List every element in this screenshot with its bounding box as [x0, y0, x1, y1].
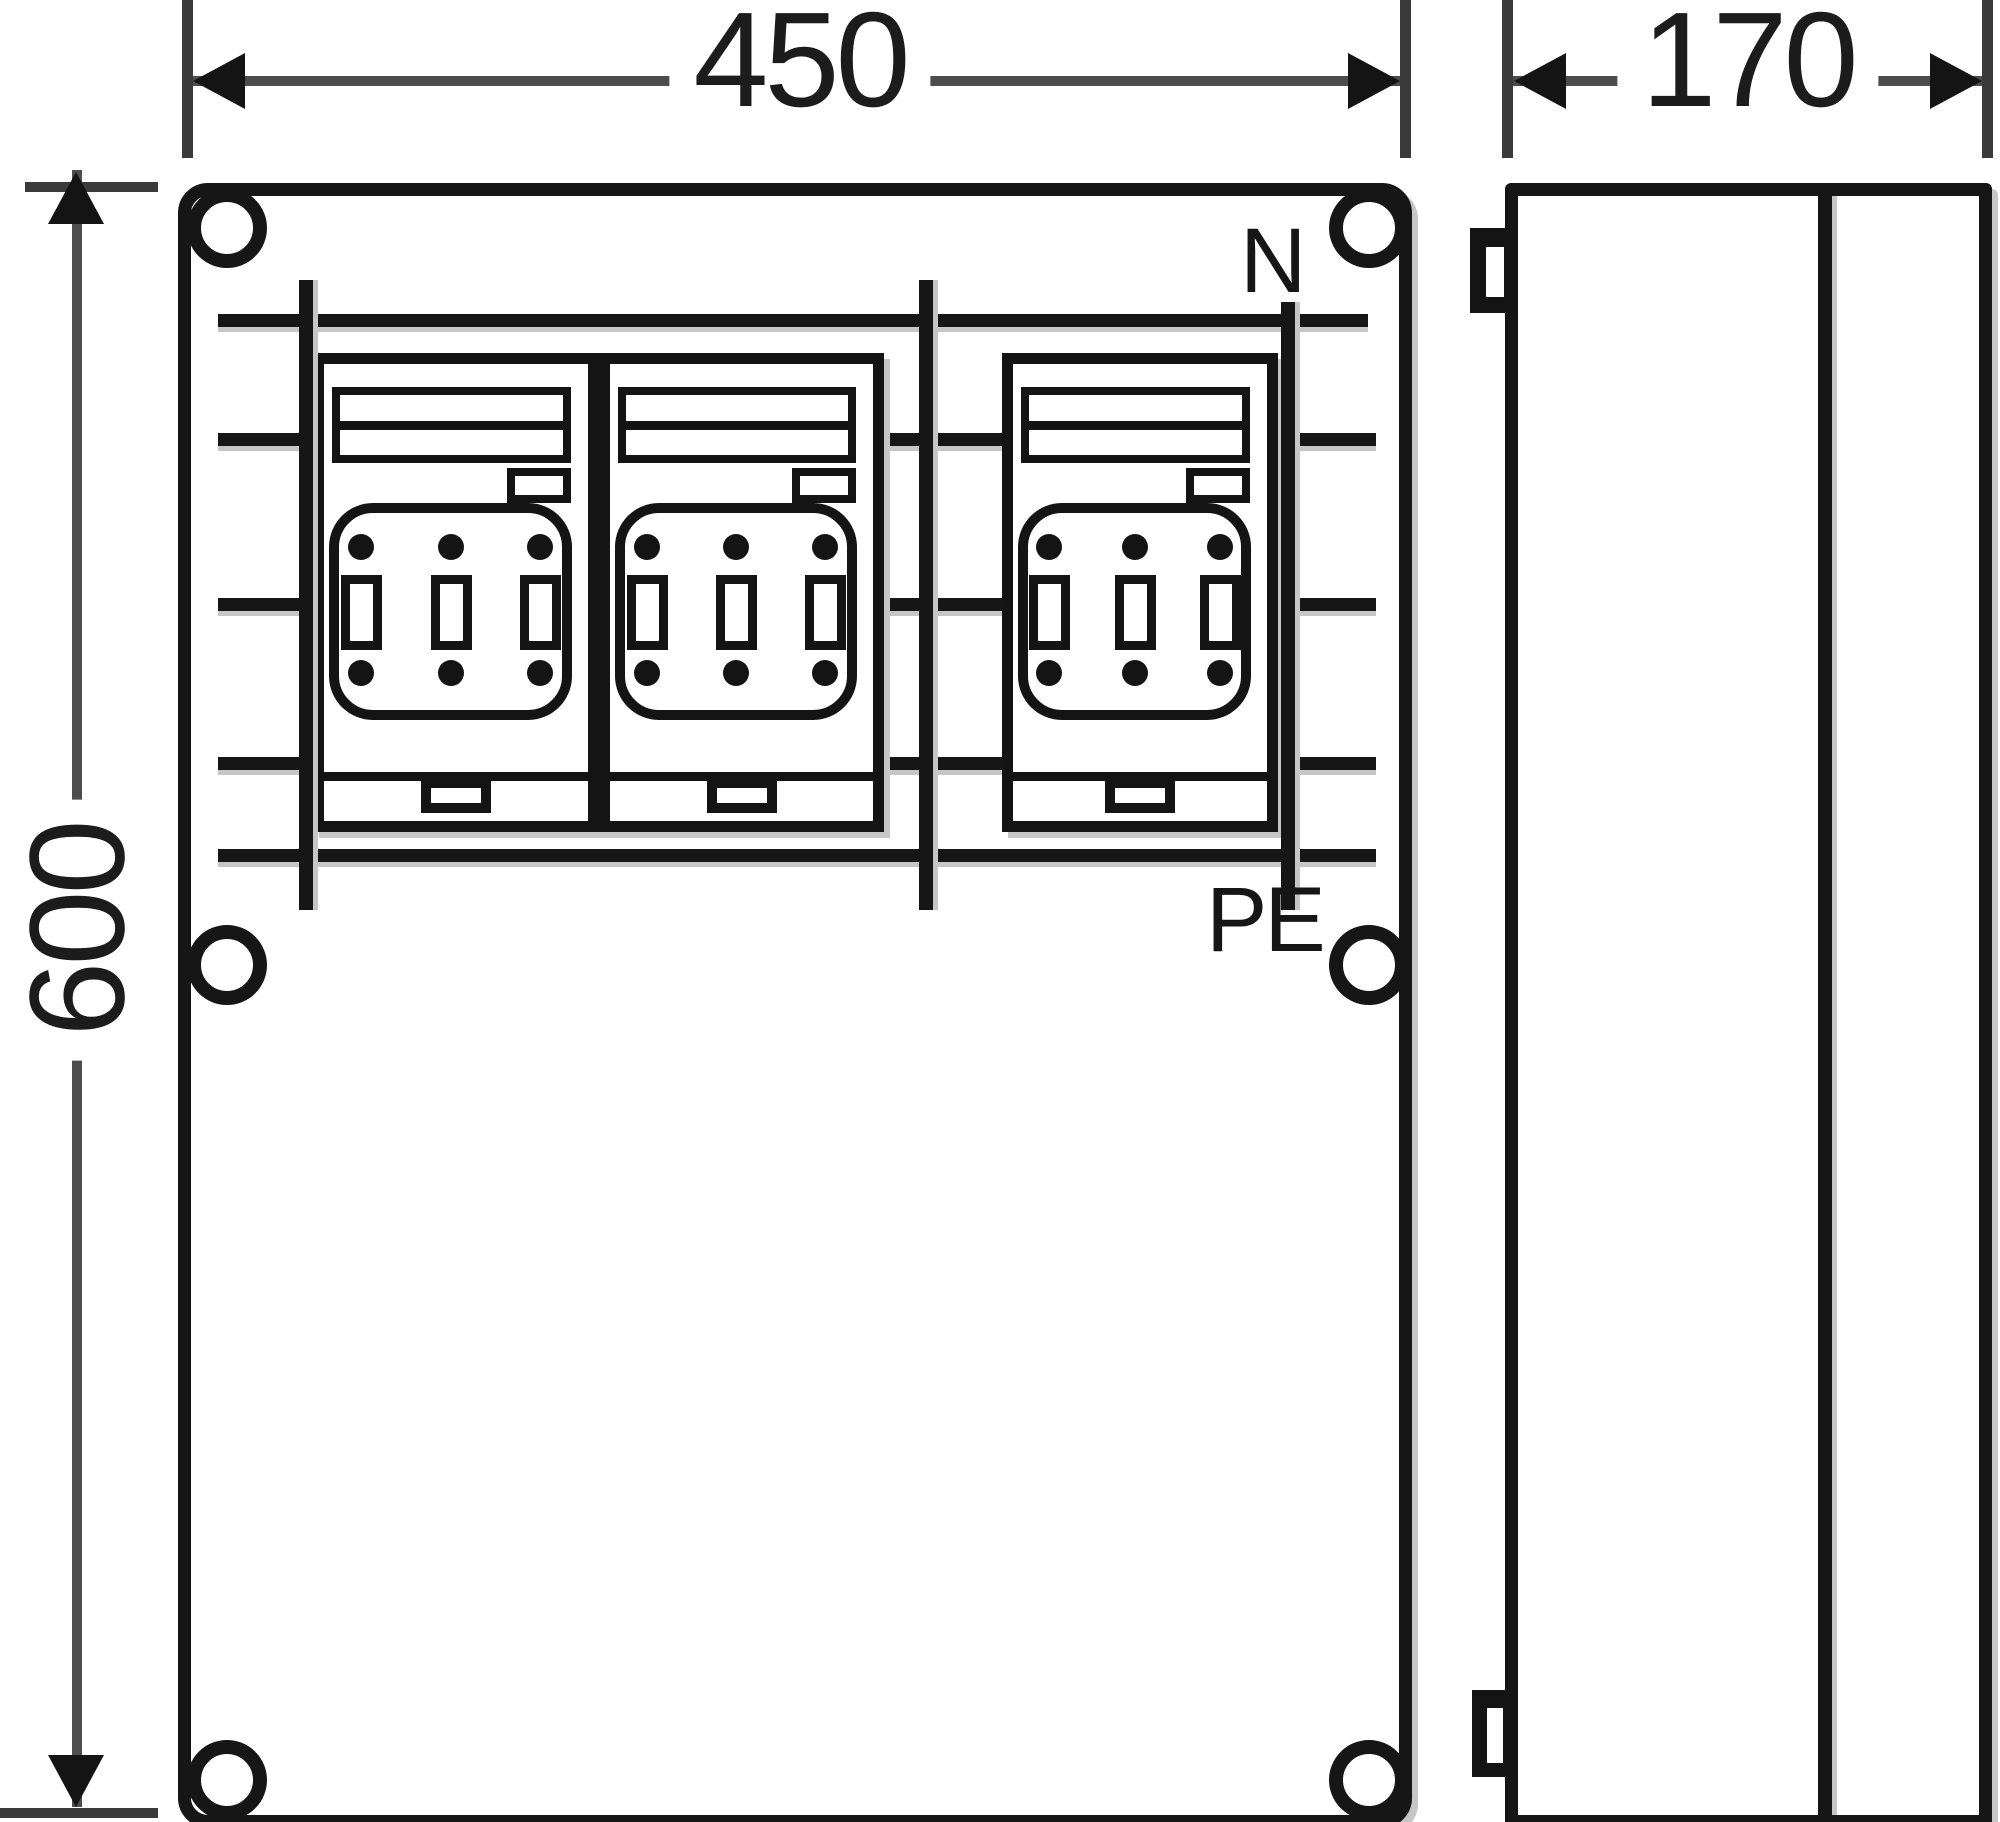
hinge-lug-top — [1470, 228, 1513, 313]
contact-dot — [527, 660, 553, 686]
label-window-divider — [340, 421, 563, 430]
fuse-slot — [1115, 575, 1156, 650]
hinge-lug-slot — [1486, 247, 1504, 297]
mounting-hole — [1329, 925, 1409, 1005]
busbar-tick-middle — [919, 280, 933, 910]
contact-dot — [723, 660, 749, 686]
handle-plate — [615, 503, 857, 720]
contact-dot — [438, 534, 464, 560]
indicator-window — [792, 468, 856, 503]
contact-dot — [1207, 660, 1233, 686]
busbar-tick-left — [299, 280, 313, 910]
mounting-hole — [187, 925, 267, 1005]
arrow-left-icon — [193, 53, 245, 109]
contact-dot — [1122, 660, 1148, 686]
dim-height-label: 600 — [10, 799, 145, 1060]
mounting-hole — [1329, 1740, 1409, 1820]
arrow-right-icon — [1348, 53, 1400, 109]
dim-depth-extension-left — [1502, 0, 1513, 158]
mounting-hole — [1329, 188, 1409, 268]
enclosure-dimensional-drawing: 450 170 600 — [0, 0, 2000, 1822]
fuse-slot — [1200, 575, 1241, 650]
busbar-tick-right — [1281, 302, 1295, 910]
dim-height-extension-bottom — [0, 1808, 158, 1818]
contact-dot — [812, 534, 838, 560]
contact-dot — [634, 534, 660, 560]
label-window-divider — [1029, 421, 1242, 430]
dim-width-extension-right — [1400, 0, 1411, 158]
dim-width-label: 450 — [669, 0, 930, 127]
pe-busbar-row — [218, 849, 1376, 862]
fuse-slot — [341, 575, 382, 650]
indicator-window — [1186, 468, 1250, 503]
arrow-down-icon — [48, 1755, 104, 1807]
n-busbar-row — [218, 314, 1368, 327]
side-view-cover-divider — [1818, 196, 1832, 1815]
arrow-right-icon — [1930, 53, 1982, 109]
mounting-hole — [187, 188, 267, 268]
contact-dot — [1207, 534, 1233, 560]
fuse-slot — [431, 575, 472, 650]
label-window — [1021, 387, 1250, 463]
fuse-slot — [627, 575, 668, 650]
hinge-lug-slot — [1487, 1708, 1503, 1763]
fuse-slot — [1029, 575, 1070, 650]
fuse-slot — [716, 575, 757, 650]
contact-dot — [1122, 534, 1148, 560]
hinge-lug-bottom — [1472, 1690, 1513, 1777]
contact-dot — [812, 660, 838, 686]
arrow-up-icon — [48, 172, 104, 224]
handle-plate — [329, 503, 572, 720]
dim-depth-label: 170 — [1617, 0, 1878, 127]
label-window — [618, 387, 856, 463]
contact-dot — [1036, 660, 1062, 686]
terminal-tab — [707, 778, 777, 813]
contact-dot — [348, 534, 374, 560]
label-window-divider — [626, 421, 848, 430]
fuse-switch-2 — [599, 353, 884, 832]
dim-width-extension-left — [182, 0, 193, 158]
neutral-busbar-label: N — [1240, 215, 1303, 307]
terminal-tab — [421, 778, 491, 813]
dim-depth-extension-right — [1982, 0, 1993, 158]
pe-busbar-label: PE — [1206, 874, 1323, 966]
contact-dot — [634, 660, 660, 686]
contact-dot — [527, 534, 553, 560]
mounting-hole — [187, 1740, 267, 1820]
contact-dot — [723, 534, 749, 560]
label-window — [332, 387, 571, 463]
contact-dot — [1036, 534, 1062, 560]
side-view-enclosure — [1505, 183, 1992, 1822]
fuse-switch-1 — [313, 353, 599, 832]
fuse-slot — [805, 575, 846, 650]
arrow-left-icon — [1514, 53, 1566, 109]
terminal-tab — [1105, 778, 1175, 813]
contact-dot — [438, 660, 464, 686]
indicator-window — [507, 468, 571, 503]
contact-dot — [348, 660, 374, 686]
fuse-switch-3 — [1002, 353, 1278, 832]
handle-plate — [1018, 503, 1251, 720]
fuse-slot — [520, 575, 561, 650]
